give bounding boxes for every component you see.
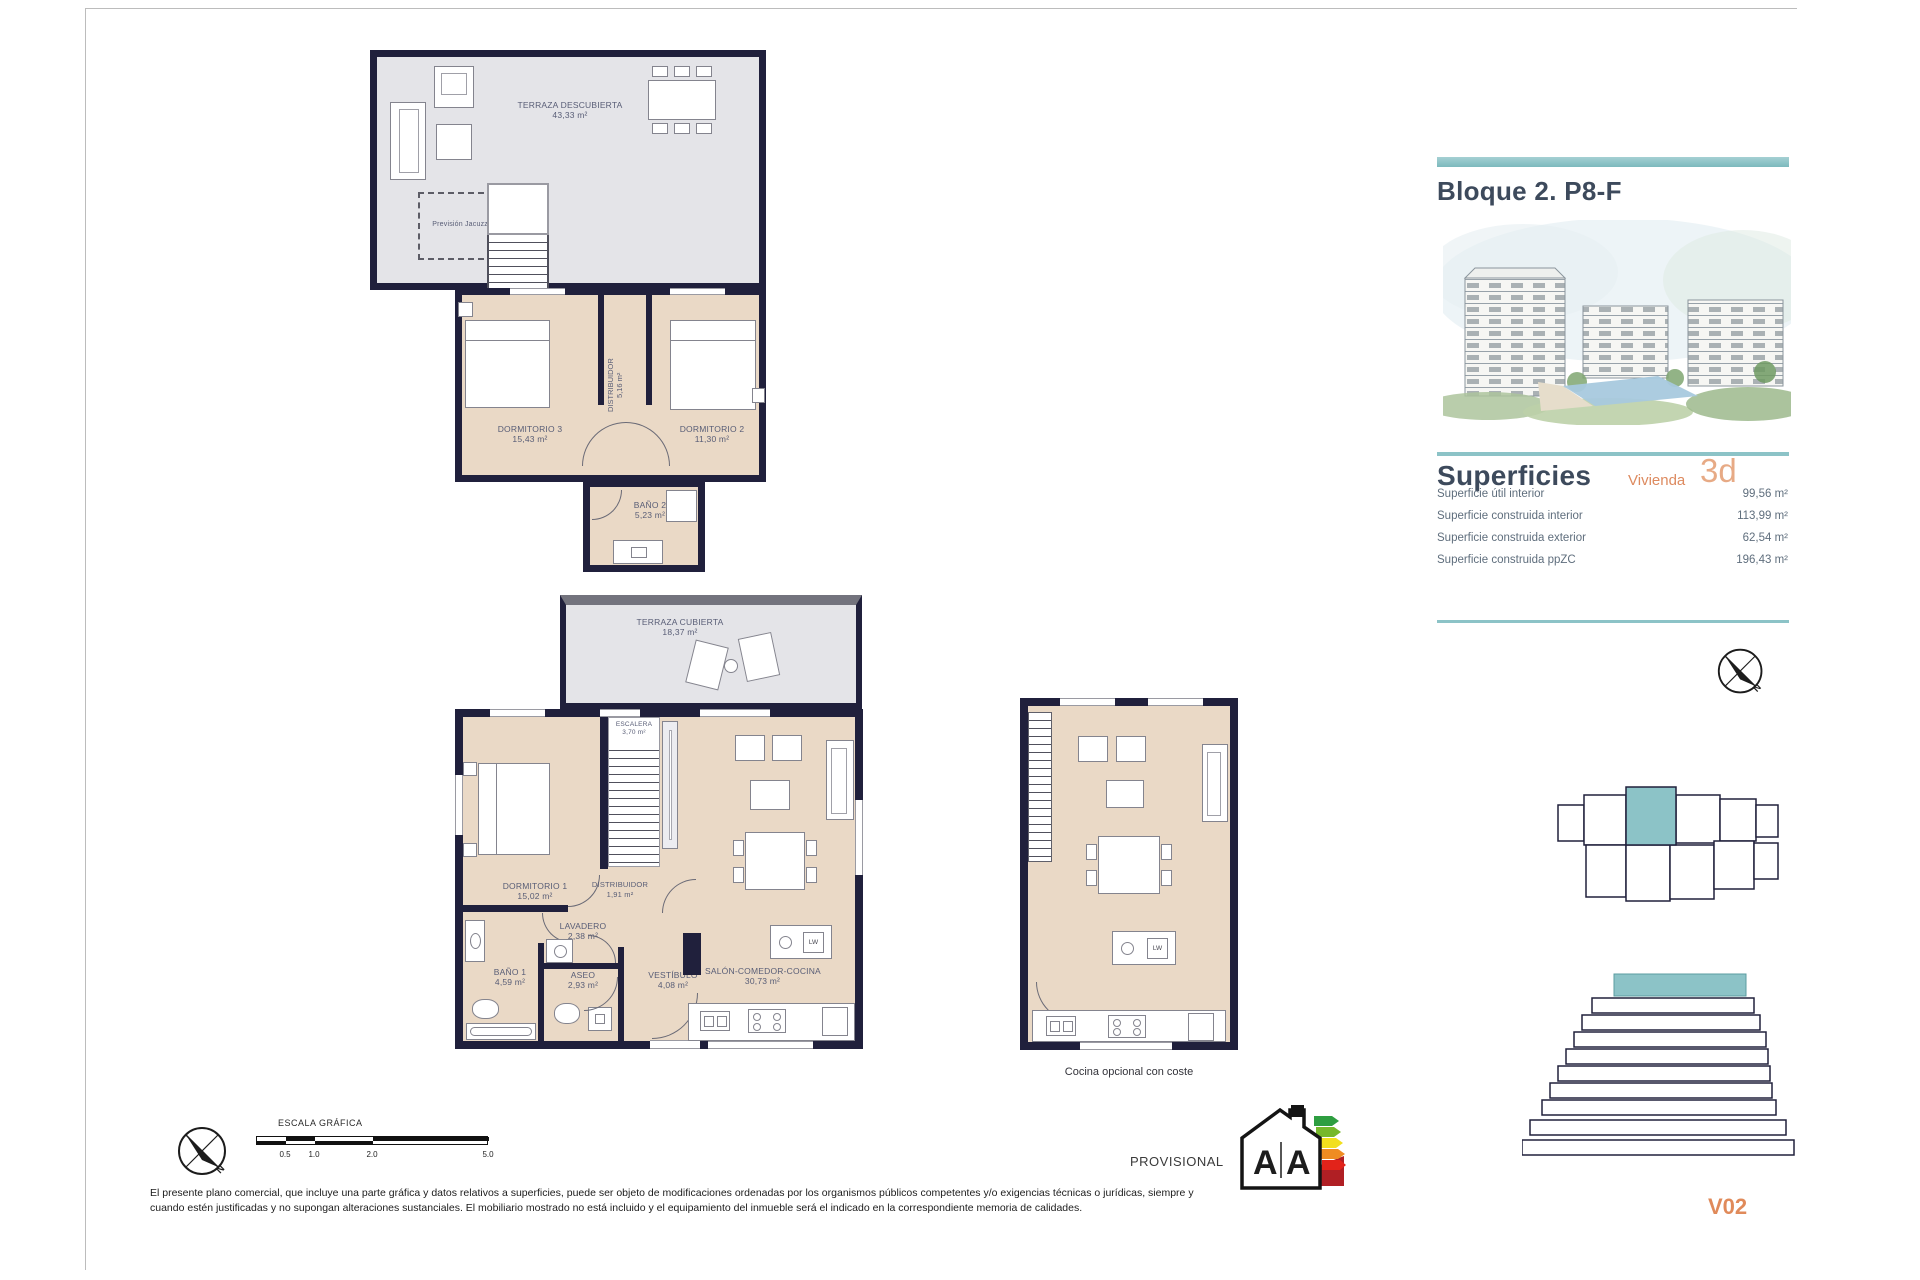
stove bbox=[748, 1009, 786, 1033]
dining-table bbox=[1098, 836, 1160, 894]
svg-text:A: A bbox=[1286, 1144, 1311, 1182]
window-opening bbox=[700, 709, 770, 717]
main-floor-plan: TERRAZA CUBIERTA18,37 m² DORMITORIO 115,… bbox=[450, 595, 880, 1055]
dishwasher: LW bbox=[1147, 938, 1168, 959]
dining-chair bbox=[733, 840, 744, 856]
highlighted-floor bbox=[1614, 974, 1746, 996]
window-opening bbox=[490, 709, 545, 717]
window-opening bbox=[1080, 1042, 1172, 1050]
dining-chair bbox=[1161, 870, 1172, 886]
wall bbox=[600, 717, 608, 869]
building-section-diagram bbox=[1522, 968, 1798, 1173]
room-label-distribuidor-upper: DISTRIBUIDOR5,16 m² bbox=[606, 345, 624, 425]
dining-chair bbox=[696, 123, 712, 134]
superficie-row-value: 99,56 m² bbox=[1600, 488, 1788, 500]
kitchen-island: LW bbox=[1112, 931, 1176, 965]
dining-table bbox=[648, 80, 716, 120]
sheet-frame-top bbox=[85, 8, 1797, 9]
svg-text:N: N bbox=[214, 1163, 227, 1176]
scale-tick: 1.0 bbox=[308, 1150, 319, 1159]
scale-title: ESCALA GRÁFICA bbox=[278, 1118, 363, 1128]
coffee-table bbox=[1106, 780, 1144, 808]
superficie-row-label: Superficie construida interior bbox=[1437, 510, 1583, 522]
sheet-frame-left bbox=[85, 8, 86, 1270]
dining-chair bbox=[806, 867, 817, 883]
entry-opening bbox=[650, 1040, 700, 1049]
dining-chair bbox=[1086, 870, 1097, 886]
wall bbox=[463, 905, 568, 912]
disclaimer-line-2: cuando estén justificadas y no supongan … bbox=[150, 1201, 1082, 1216]
round-table bbox=[724, 659, 738, 673]
sofa bbox=[390, 102, 426, 180]
dining-chair bbox=[652, 66, 668, 77]
superficie-row-label: Superficie construida exterior bbox=[1437, 532, 1586, 544]
stairs bbox=[1028, 712, 1052, 862]
dining-chair bbox=[696, 66, 712, 77]
room-label-escalera: ESCALERA3,70 m² bbox=[602, 721, 666, 737]
dining-chair bbox=[1086, 844, 1097, 860]
sink bbox=[613, 540, 663, 564]
room-label-bano-1: BAÑO 14,59 m² bbox=[475, 967, 545, 987]
wardrobe bbox=[662, 721, 678, 849]
dining-chair bbox=[674, 123, 690, 134]
window-opening bbox=[510, 288, 565, 295]
armchair bbox=[735, 735, 765, 761]
dining-chair bbox=[733, 867, 744, 883]
unit-label: Vivienda bbox=[1628, 472, 1685, 489]
room-label-terraza-descubierta: TERRAZA DESCUBIERTA43,33 m² bbox=[495, 100, 645, 120]
armchair bbox=[434, 66, 474, 108]
scale-tick: 2.0 bbox=[366, 1150, 377, 1159]
scale-tick: 5.0 bbox=[482, 1150, 493, 1159]
compass-icon: N bbox=[176, 1124, 232, 1180]
bed bbox=[478, 763, 550, 855]
stairs-landing bbox=[487, 183, 549, 235]
unit-type: 3d bbox=[1700, 452, 1737, 490]
wall bbox=[598, 295, 604, 405]
kitchen-sink bbox=[1046, 1016, 1076, 1036]
kitchen-island: LW bbox=[770, 925, 832, 959]
shower bbox=[666, 490, 697, 522]
kitchen-option-plan: LW Cocina opcional con coste bbox=[1020, 698, 1242, 1093]
washer bbox=[546, 939, 573, 963]
compass-icon: N bbox=[1716, 646, 1768, 698]
scale-bar bbox=[256, 1136, 488, 1145]
wall bbox=[538, 943, 544, 1042]
fridge bbox=[822, 1007, 848, 1036]
window-opening bbox=[600, 709, 640, 717]
kitchen-sink bbox=[700, 1011, 730, 1031]
room-label-salon: SALÓN-COMEDOR-COCINA30,73 m² bbox=[705, 966, 820, 986]
energy-rating-icon: A A bbox=[1236, 1100, 1346, 1195]
highlighted-unit bbox=[1626, 787, 1676, 845]
dishwasher: LW bbox=[803, 932, 824, 953]
upper-floor-plan: TERRAZA DESCUBIERTA43,33 m² Previsión Ja… bbox=[370, 50, 770, 575]
sink bbox=[588, 1007, 612, 1031]
superficie-row-value: 196,43 m² bbox=[1600, 554, 1788, 566]
room-label-dormitorio-2: DORMITORIO 211,30 m² bbox=[662, 424, 762, 444]
plan-sheet: TERRAZA DESCUBIERTA43,33 m² Previsión Ja… bbox=[0, 0, 1920, 1280]
armchair bbox=[1078, 736, 1108, 762]
svg-text:A: A bbox=[1253, 1144, 1278, 1182]
dining-chair bbox=[674, 66, 690, 77]
superficie-row-value: 113,99 m² bbox=[1600, 510, 1788, 522]
header-accent-bar bbox=[1437, 157, 1789, 167]
bathtub bbox=[466, 1023, 536, 1040]
dining-chair bbox=[1161, 844, 1172, 860]
window-opening bbox=[1060, 698, 1115, 706]
side-table bbox=[436, 124, 472, 160]
window-opening bbox=[1148, 698, 1203, 706]
dining-chair bbox=[806, 840, 817, 856]
window-opening bbox=[708, 1041, 813, 1049]
room-label-terraza-cubierta: TERRAZA CUBIERTA18,37 m² bbox=[600, 617, 760, 637]
pillar bbox=[683, 933, 701, 975]
divider bbox=[1437, 620, 1789, 623]
superficie-row-value: 62,54 m² bbox=[1600, 532, 1788, 544]
option-caption: Cocina opcional con coste bbox=[1029, 1066, 1229, 1078]
room-label-dormitorio-3: DORMITORIO 315,43 m² bbox=[475, 424, 585, 444]
window-opening bbox=[855, 800, 863, 875]
stove bbox=[1108, 1015, 1146, 1038]
nightstand bbox=[752, 388, 765, 403]
page-title: Bloque 2. P8-F bbox=[1437, 176, 1622, 207]
sofa bbox=[826, 740, 854, 820]
nightstand bbox=[463, 762, 477, 776]
bed bbox=[465, 320, 550, 408]
nightstand bbox=[463, 843, 477, 857]
wall bbox=[618, 947, 624, 1042]
window-opening bbox=[455, 775, 463, 835]
wall bbox=[544, 963, 620, 969]
toilet bbox=[554, 1003, 580, 1024]
scale-tick: 0.5 bbox=[279, 1150, 290, 1159]
version-label: V02 bbox=[1708, 1194, 1747, 1220]
nightstand bbox=[458, 302, 473, 317]
coffee-table bbox=[750, 780, 790, 810]
key-plan-diagram bbox=[1556, 783, 1794, 919]
building-rendering bbox=[1443, 220, 1791, 425]
toilet bbox=[472, 999, 499, 1019]
sofa bbox=[1202, 744, 1228, 822]
dining-table bbox=[745, 832, 805, 890]
window-opening bbox=[670, 288, 725, 295]
superficie-row-label: Superficie construida ppZC bbox=[1437, 554, 1576, 566]
bed bbox=[670, 320, 756, 410]
room-label-lavadero: LAVADERO2,38 m² bbox=[550, 921, 616, 941]
armchair bbox=[772, 735, 802, 761]
sink bbox=[465, 920, 485, 962]
stairs bbox=[609, 743, 659, 866]
superficie-row-label: Superficie útil interior bbox=[1437, 488, 1544, 500]
disclaimer-line-1: El presente plano comercial, que incluye… bbox=[150, 1186, 1194, 1201]
fridge bbox=[1188, 1013, 1214, 1041]
room-label-distribuidor-main: DISTRIBUIDOR1,91 m² bbox=[585, 880, 655, 900]
provisional-label: PROVISIONAL bbox=[1130, 1154, 1224, 1169]
armchair bbox=[1116, 736, 1146, 762]
wall bbox=[646, 295, 652, 405]
dining-chair bbox=[652, 123, 668, 134]
